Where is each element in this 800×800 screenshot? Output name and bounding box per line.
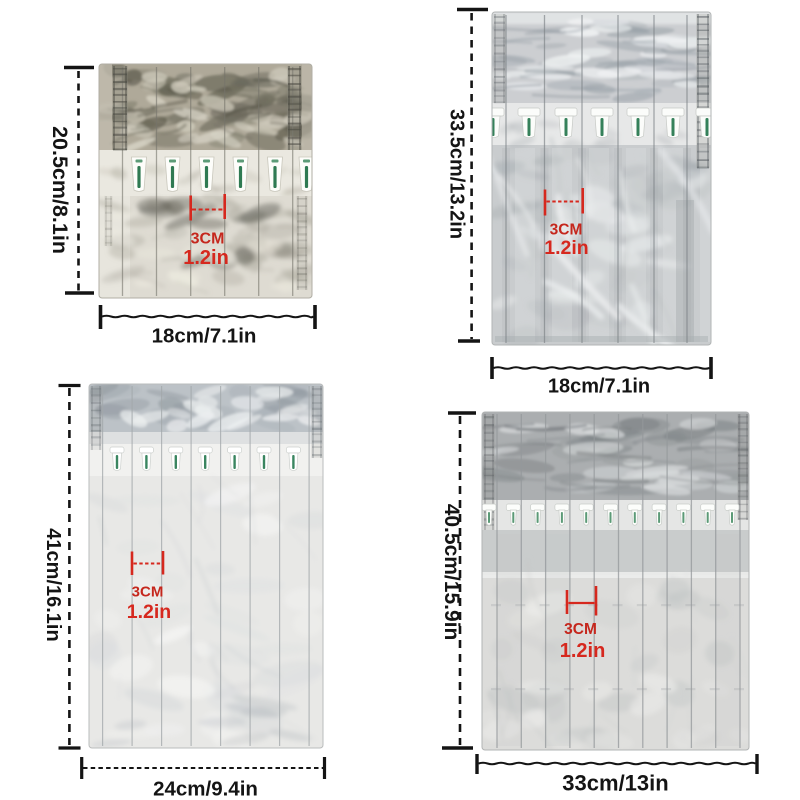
svg-text:40.5cm/15.9in: 40.5cm/15.9in — [440, 504, 463, 641]
svg-text:1.2in: 1.2in — [560, 640, 606, 662]
svg-text:3CM: 3CM — [132, 584, 164, 601]
svg-text:3CM: 3CM — [550, 222, 583, 239]
svg-text:1.2in: 1.2in — [183, 247, 229, 269]
svg-text:33cm/13in: 33cm/13in — [562, 771, 668, 796]
svg-text:1.2in: 1.2in — [544, 237, 588, 259]
svg-text:18cm/7.1in: 18cm/7.1in — [152, 325, 257, 348]
svg-text:18cm/7.1in: 18cm/7.1in — [548, 376, 650, 398]
svg-text:41cm/16.1in: 41cm/16.1in — [42, 528, 64, 641]
svg-text:24cm/9.4in: 24cm/9.4in — [153, 778, 258, 800]
svg-text:1.2in: 1.2in — [127, 601, 171, 623]
svg-text:33.5cm/13.2in: 33.5cm/13.2in — [446, 109, 468, 239]
svg-text:3CM: 3CM — [564, 621, 597, 638]
svg-text:3CM: 3CM — [191, 231, 225, 248]
svg-text:20.5cm/8.1in: 20.5cm/8.1in — [48, 126, 72, 254]
